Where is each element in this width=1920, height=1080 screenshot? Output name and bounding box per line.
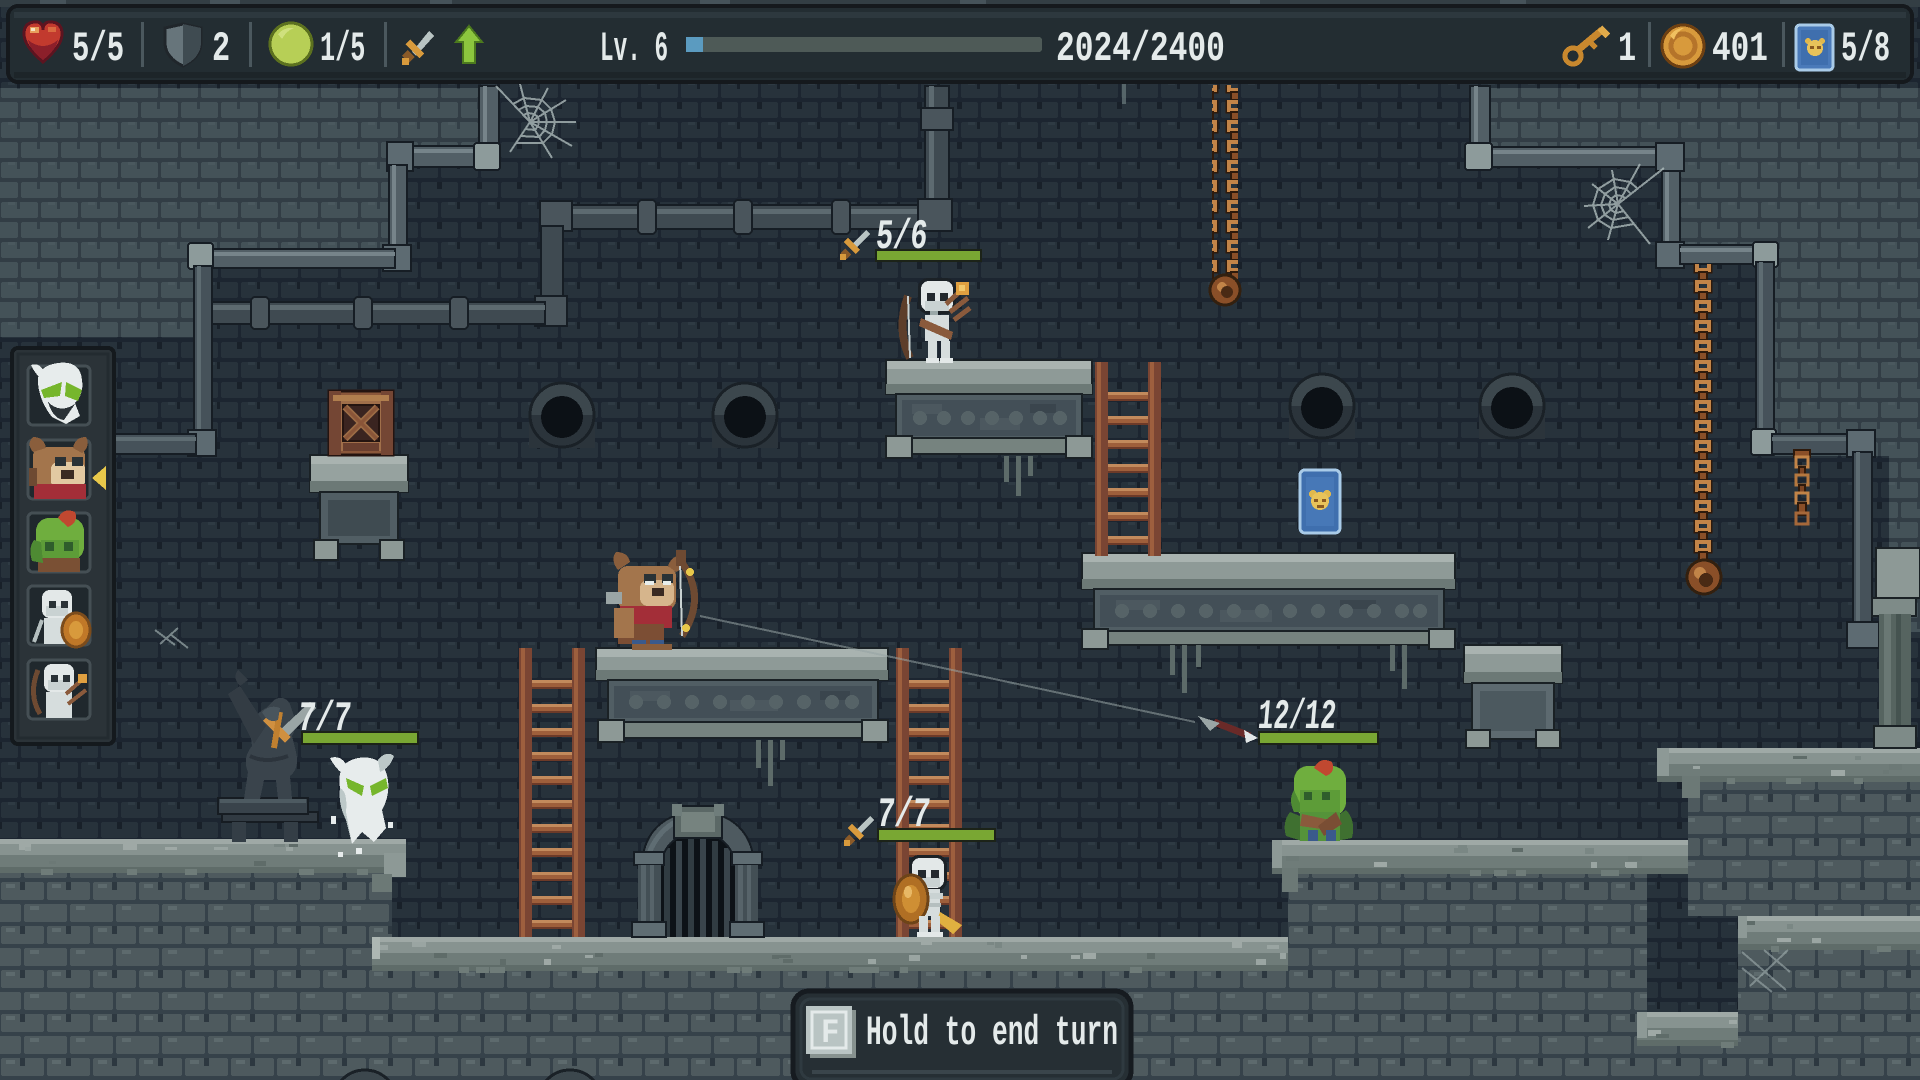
svg-text:2: 2 (212, 26, 230, 73)
svg-text:Hold to end turn: Hold to end turn (866, 1009, 1118, 1057)
svg-text:401: 401 (1712, 26, 1768, 74)
svg-text:F: F (821, 1014, 839, 1053)
svg-text:5/8: 5/8 (1841, 26, 1890, 73)
svg-text:5/5: 5/5 (72, 25, 124, 73)
svg-text:2024/2400: 2024/2400 (1056, 26, 1225, 74)
svg-text:1/5: 1/5 (320, 26, 365, 73)
svg-text:1: 1 (1618, 26, 1636, 73)
svg-text:Lv. 6: Lv. 6 (600, 26, 668, 73)
